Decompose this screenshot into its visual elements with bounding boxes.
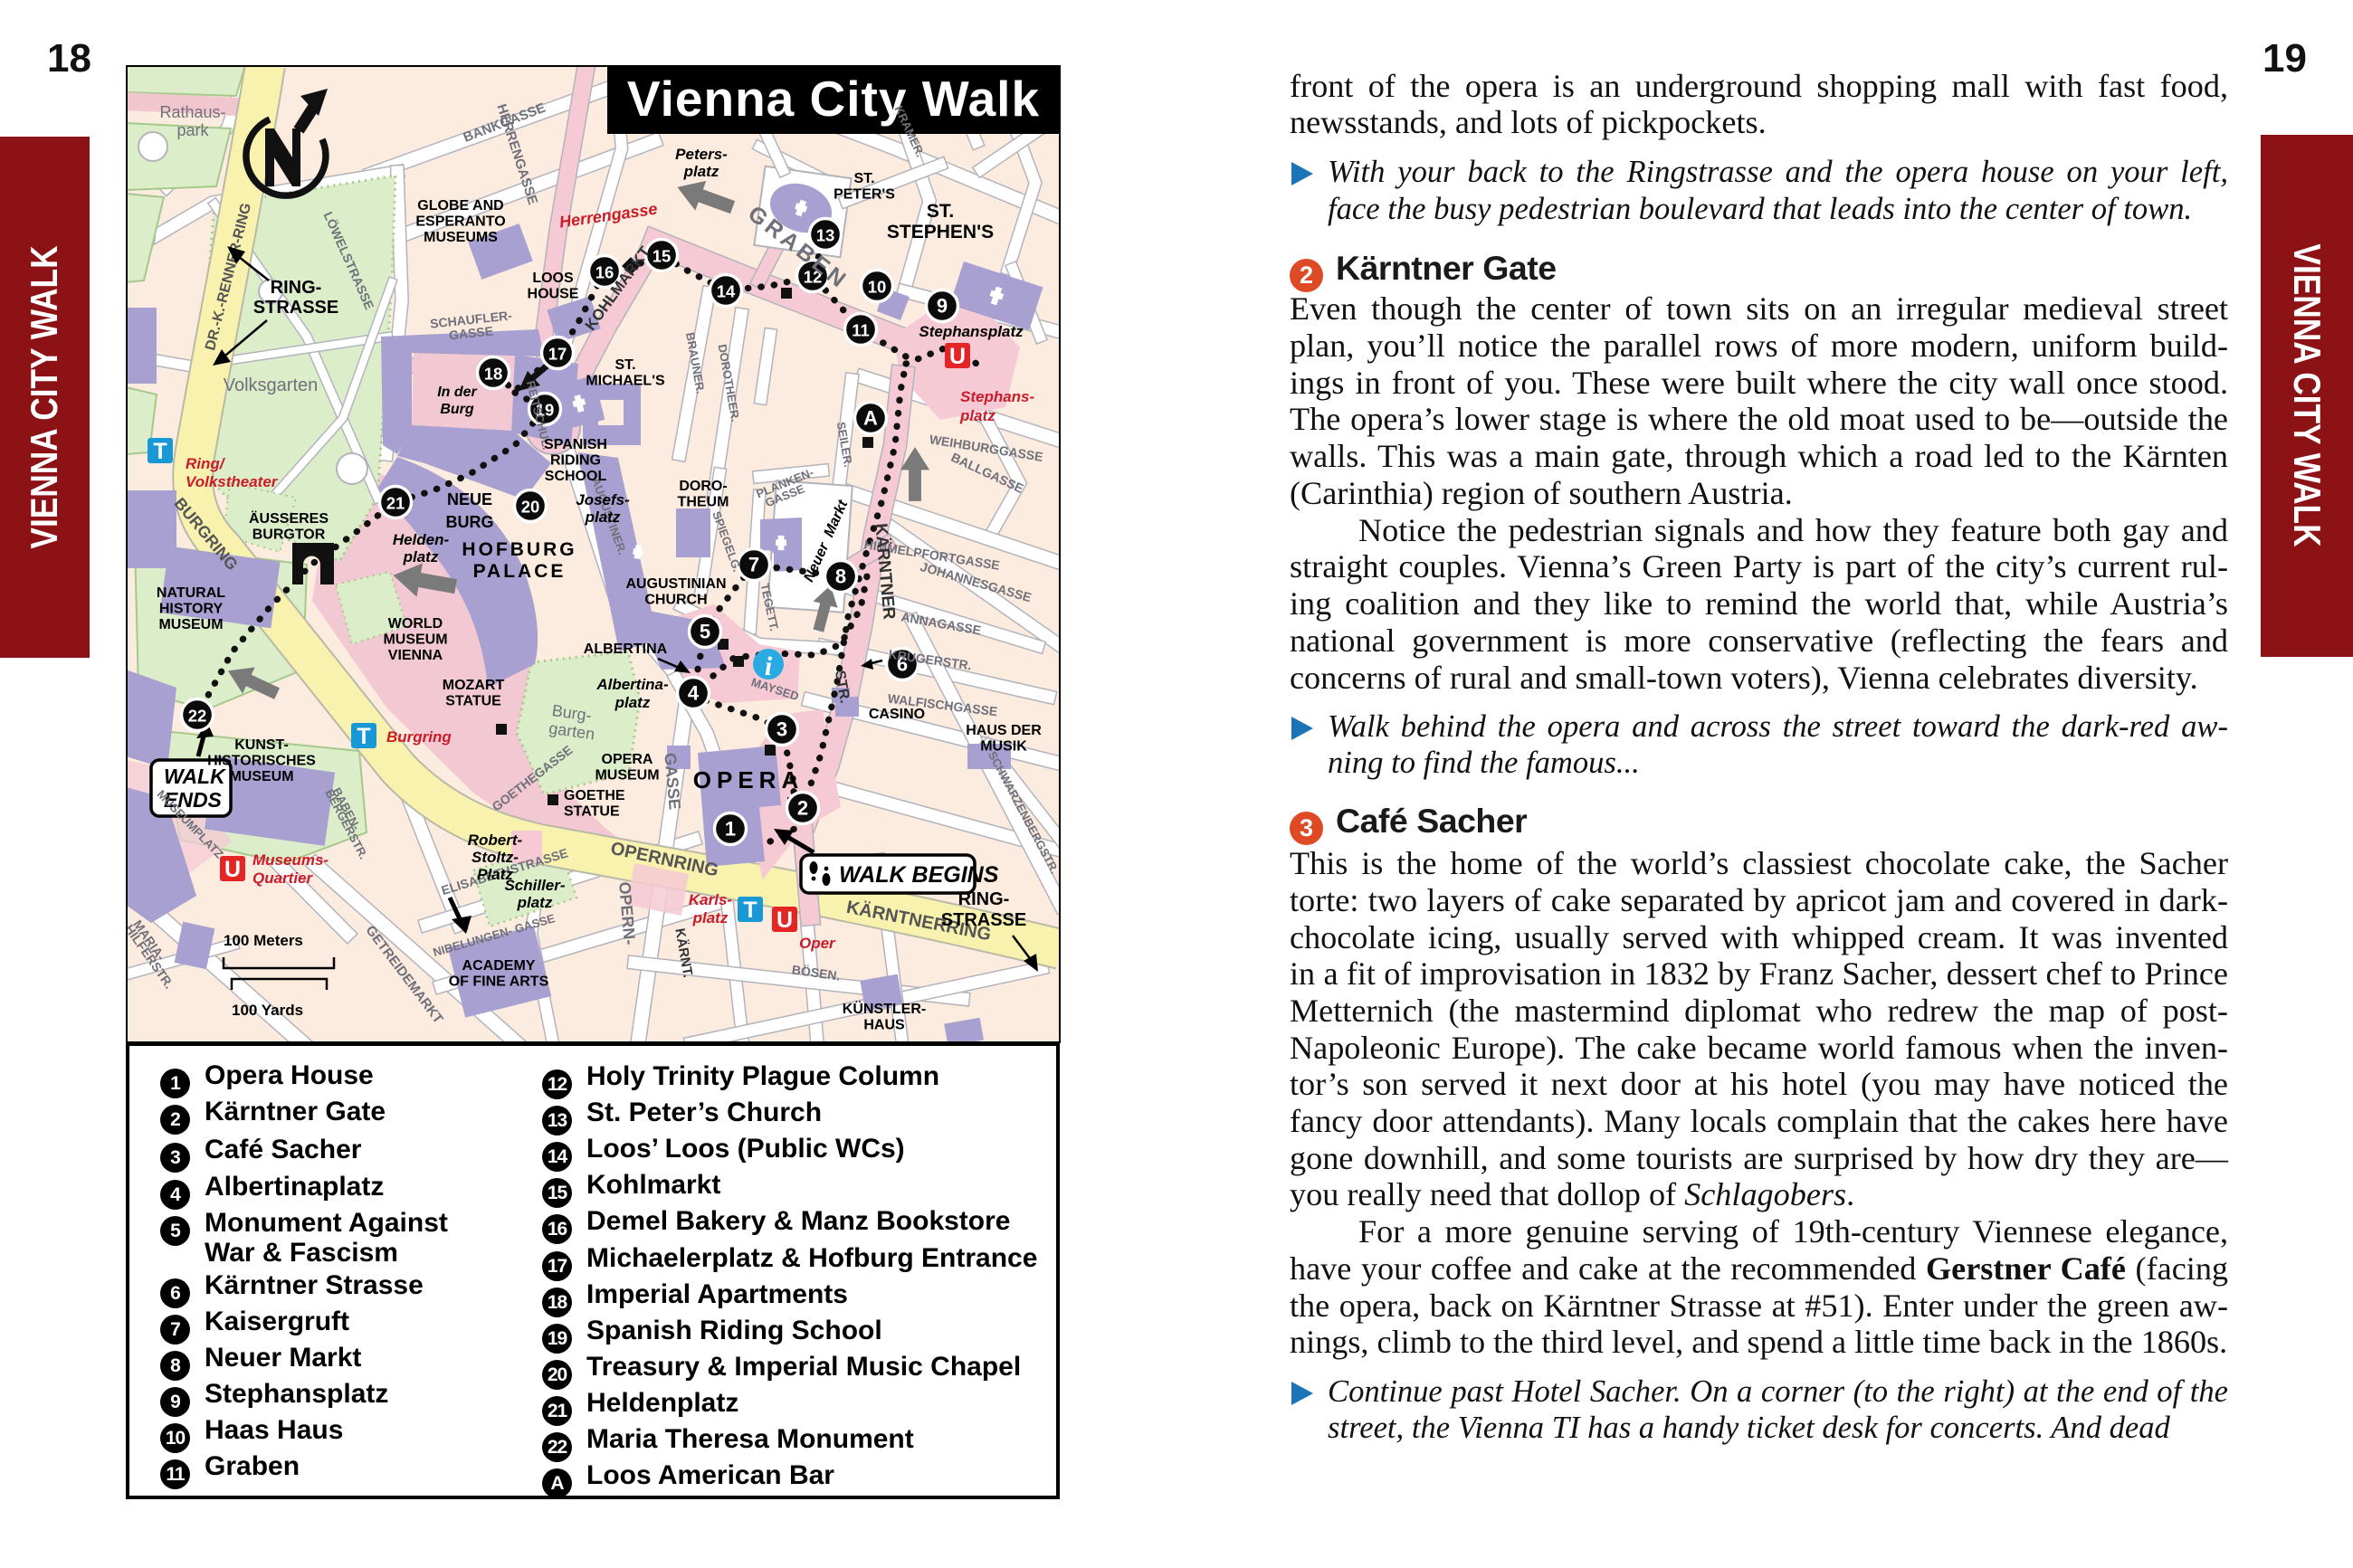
svg-text:16: 16 xyxy=(595,263,614,282)
svg-text:Peters-: Peters- xyxy=(675,146,728,163)
svg-text:SPANISH: SPANISH xyxy=(544,437,607,452)
svg-text:NEUE: NEUE xyxy=(447,490,492,508)
svg-text:Volksgarten: Volksgarten xyxy=(224,375,319,395)
svg-text:T: T xyxy=(743,898,757,923)
svg-text:ALBERTINA: ALBERTINA xyxy=(584,641,668,657)
svg-text:Karls-: Karls- xyxy=(689,891,733,908)
svg-text:MUSIK: MUSIK xyxy=(980,739,1027,755)
svg-text:STATUE: STATUE xyxy=(445,694,501,709)
svg-text:21: 21 xyxy=(386,494,405,513)
svg-text:ST.: ST. xyxy=(614,357,635,373)
svg-text:3: 3 xyxy=(776,718,787,741)
svg-text:SCHOOL: SCHOOL xyxy=(545,469,607,484)
svg-text:BURG: BURG xyxy=(446,513,494,531)
svg-text:20: 20 xyxy=(521,498,540,517)
svg-text:U: U xyxy=(776,908,793,933)
svg-text:HAUS DER: HAUS DER xyxy=(966,723,1042,738)
svg-text:DORO-: DORO- xyxy=(679,479,727,494)
svg-text:CHURCH: CHURCH xyxy=(644,593,707,608)
svg-text:ACADEMY: ACADEMY xyxy=(462,958,536,974)
svg-text:MUSEUM: MUSEUM xyxy=(229,769,293,784)
svg-text:MUSEUM: MUSEUM xyxy=(158,617,223,632)
svg-text:OPERA: OPERA xyxy=(602,752,653,767)
svg-text:ST.: ST. xyxy=(927,201,954,222)
svg-text:OPERA: OPERA xyxy=(693,766,804,794)
svg-text:MICHAEL'S: MICHAEL'S xyxy=(586,374,665,389)
svg-text:10: 10 xyxy=(868,278,887,297)
svg-text:Museums-: Museums- xyxy=(252,851,329,869)
svg-text:WALK BEGINS: WALK BEGINS xyxy=(839,862,999,888)
svg-text:STATUE: STATUE xyxy=(564,804,620,820)
svg-text:U: U xyxy=(224,857,241,882)
svg-text:platz: platz xyxy=(585,508,621,526)
svg-text:KÜNSTLER-: KÜNSTLER- xyxy=(843,1000,926,1017)
svg-text:Helden-: Helden- xyxy=(393,531,450,548)
svg-text:Vienna City Walk: Vienna City Walk xyxy=(627,71,1040,127)
svg-text:i: i xyxy=(765,651,773,681)
svg-text:RIDING: RIDING xyxy=(550,453,601,469)
svg-text:GOETHE: GOETHE xyxy=(564,788,625,803)
svg-text:100 Meters: 100 Meters xyxy=(224,932,303,949)
svg-text:Schiller-: Schiller- xyxy=(504,877,565,894)
svg-text:AUGUSTINIAN: AUGUSTINIAN xyxy=(625,576,726,592)
svg-text:VIENNA: VIENNA xyxy=(388,648,443,663)
svg-text:park: park xyxy=(176,121,209,139)
svg-text:CASINO: CASINO xyxy=(869,707,925,722)
svg-text:Quartier: Quartier xyxy=(252,870,314,887)
svg-text:platz: platz xyxy=(614,694,651,711)
svg-text:Stephans-: Stephans- xyxy=(960,388,1035,405)
svg-text:RING-: RING- xyxy=(958,889,1010,909)
svg-text:LOOS: LOOS xyxy=(532,271,574,286)
svg-text:9: 9 xyxy=(937,295,948,318)
svg-text:HISTORISCHES: HISTORISCHES xyxy=(207,754,316,769)
svg-text:4: 4 xyxy=(688,682,700,705)
svg-text:Burgring: Burgring xyxy=(386,728,452,746)
svg-text:100 Yards: 100 Yards xyxy=(232,1002,303,1019)
svg-text:RING-: RING- xyxy=(271,278,322,298)
svg-text:HAUS: HAUS xyxy=(863,1018,905,1033)
svg-text:15: 15 xyxy=(653,247,672,266)
svg-text:7: 7 xyxy=(748,554,759,576)
svg-text:PALACE: PALACE xyxy=(473,561,567,582)
svg-text:NATURAL: NATURAL xyxy=(157,585,225,601)
svg-text:MUSEUM: MUSEUM xyxy=(383,632,447,648)
svg-text:PETER'S: PETER'S xyxy=(834,187,895,203)
svg-text:A: A xyxy=(863,407,878,430)
svg-text:BURGTOR: BURGTOR xyxy=(252,527,326,543)
svg-text:Josefs-: Josefs- xyxy=(576,491,630,508)
svg-text:Rathaus-: Rathaus- xyxy=(159,103,225,121)
svg-text:MOZART: MOZART xyxy=(443,678,505,693)
svg-text:In der: In der xyxy=(437,385,477,400)
svg-text:MUSEUMS: MUSEUMS xyxy=(424,230,498,245)
svg-text:22: 22 xyxy=(188,707,207,726)
svg-text:Ring/: Ring/ xyxy=(186,455,226,472)
svg-text:18: 18 xyxy=(484,365,503,384)
svg-text:HISTORY: HISTORY xyxy=(159,602,224,617)
svg-text:T: T xyxy=(357,724,370,749)
svg-text:ESPERANTO: ESPERANTO xyxy=(415,214,505,230)
svg-text:KUNST-: KUNST- xyxy=(234,737,289,753)
svg-text:platz: platz xyxy=(403,548,439,565)
svg-text:HOUSE: HOUSE xyxy=(528,287,579,302)
svg-text:ÄUSSERES: ÄUSSERES xyxy=(249,510,329,527)
svg-text:13: 13 xyxy=(816,226,835,245)
svg-text:Stephansplatz: Stephansplatz xyxy=(919,323,1024,340)
svg-text:2: 2 xyxy=(797,797,808,820)
svg-text:platz: platz xyxy=(683,163,719,180)
svg-text:GLOBE AND: GLOBE AND xyxy=(417,198,503,214)
svg-text:STRASSE: STRASSE xyxy=(941,910,1026,930)
svg-text:STRASSE: STRASSE xyxy=(253,298,338,318)
svg-text:WORLD: WORLD xyxy=(388,616,443,632)
svg-text:HOFBURG: HOFBURG xyxy=(462,539,576,560)
svg-text:Volkstheater: Volkstheater xyxy=(186,473,279,490)
svg-text:T: T xyxy=(153,439,167,464)
svg-text:U: U xyxy=(949,344,966,369)
svg-text:Robert-: Robert- xyxy=(468,832,523,849)
svg-text:platz: platz xyxy=(517,894,553,911)
svg-text:Oper: Oper xyxy=(799,935,836,952)
svg-text:OF FINE ARTS: OF FINE ARTS xyxy=(449,974,549,990)
svg-text:5: 5 xyxy=(700,621,710,643)
svg-text:17: 17 xyxy=(548,345,567,364)
svg-text:Albertina-: Albertina- xyxy=(595,676,669,693)
svg-text:14: 14 xyxy=(717,282,736,301)
svg-text:Burg: Burg xyxy=(440,402,474,417)
svg-text:MUSEUM: MUSEUM xyxy=(595,768,659,784)
svg-text:8: 8 xyxy=(835,565,846,588)
svg-text:STEPHEN'S: STEPHEN'S xyxy=(887,222,994,242)
svg-text:platz: platz xyxy=(959,407,995,424)
svg-text:platz: platz xyxy=(692,909,729,927)
svg-text:ST.: ST. xyxy=(853,171,874,186)
svg-text:1: 1 xyxy=(725,818,736,841)
svg-text:THEUM: THEUM xyxy=(678,495,729,510)
svg-text:Stoltz-: Stoltz- xyxy=(472,849,519,866)
svg-text:11: 11 xyxy=(852,321,870,340)
